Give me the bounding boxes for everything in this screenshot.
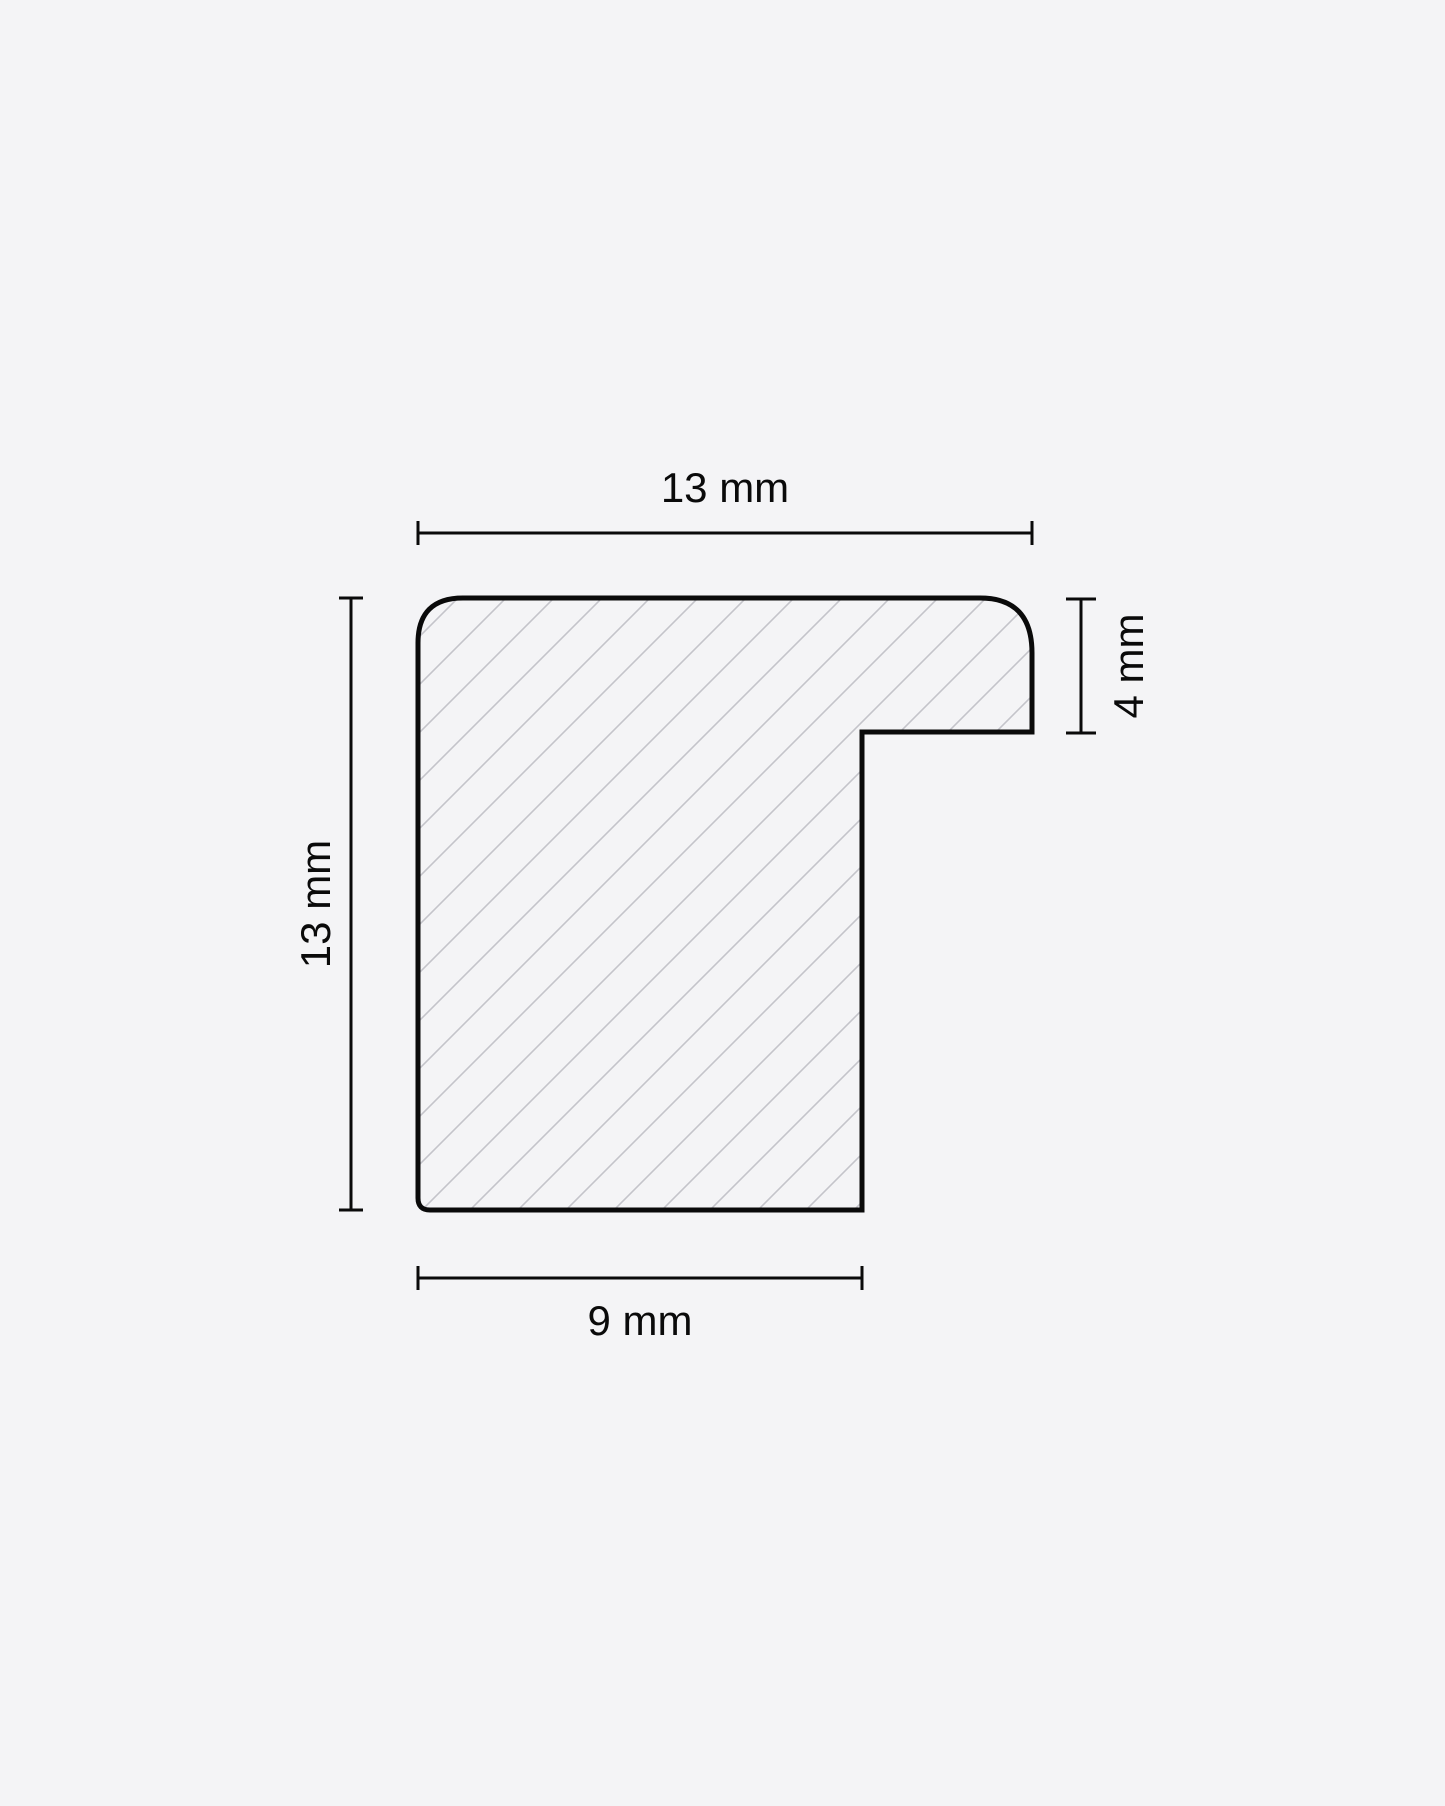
- dimension-right: 4 mm: [1066, 599, 1152, 733]
- dimension-left-label: 13 mm: [292, 840, 339, 968]
- profile-cross-section-diagram: 13 mm 13 mm 4 mm 9 mm: [0, 0, 1445, 1806]
- dimension-right-label: 4 mm: [1105, 614, 1152, 719]
- dimension-left: 13 mm: [292, 598, 363, 1210]
- technical-drawing-canvas: 13 mm 13 mm 4 mm 9 mm: [0, 0, 1445, 1806]
- dimension-bottom-label: 9 mm: [588, 1297, 693, 1344]
- frame-profile-outline: [418, 598, 1032, 1210]
- dimension-top-label: 13 mm: [661, 464, 789, 511]
- dimension-bottom: 9 mm: [418, 1266, 862, 1344]
- dimension-top: 13 mm: [418, 464, 1032, 545]
